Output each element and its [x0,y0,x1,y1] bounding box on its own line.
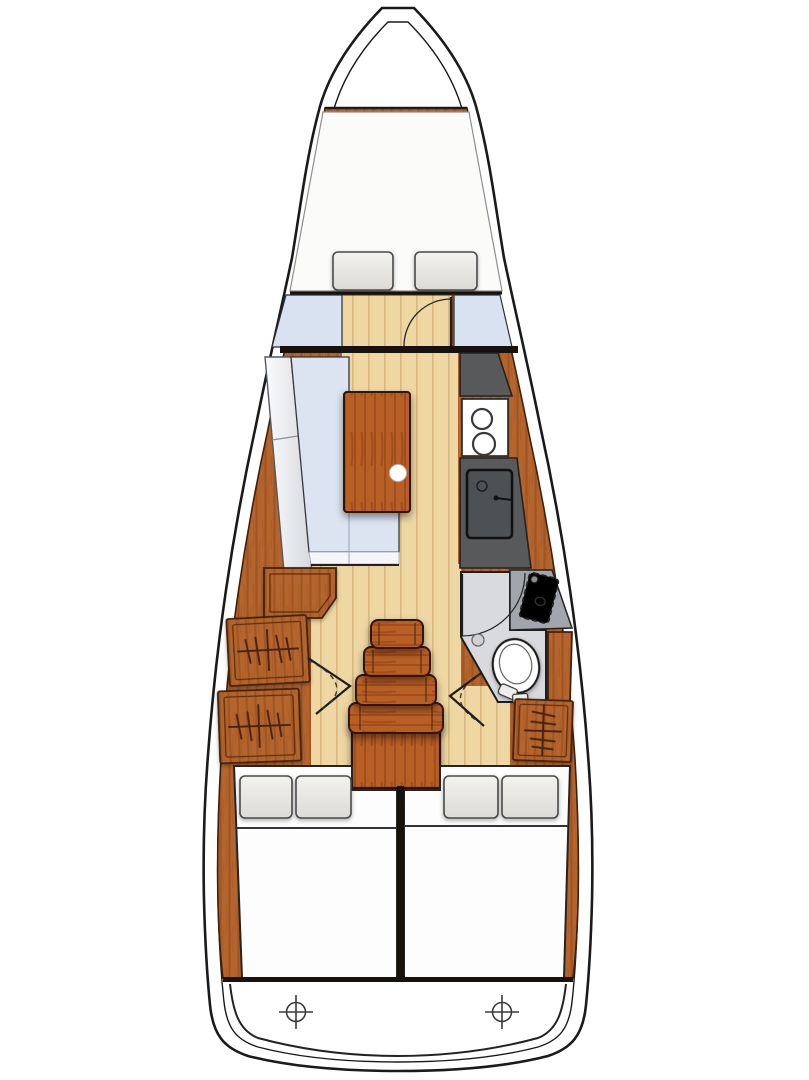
galley-sink [467,470,512,538]
settee-front-edge [309,552,399,564]
port-seat-module [264,568,336,618]
head-side-cabinet [548,632,572,702]
v-berth-pillow-starboard [415,252,477,290]
head-floor-drain [472,634,484,646]
forward-cabin [272,295,512,347]
aft-pillow-starboard-2 [502,776,558,818]
aft-berths [234,766,570,980]
berth-center-divider [397,786,404,980]
forward-cabin-floor [342,295,452,347]
saloon-table [344,392,410,512]
main-bulkhead [280,346,518,353]
transom-bulkhead [223,977,573,982]
hanging-locker-port-1 [226,615,309,686]
v-berth [290,112,502,293]
hanging-locker-port-2 [218,689,301,764]
hanging-locker-starboard [513,699,573,762]
table-handle-hole [390,465,407,482]
boat-floor-plan [0,0,809,1080]
floor-plan-stage [0,0,809,1080]
aft-pillow-port-1 [240,776,292,818]
aft-pillow-starboard-1 [444,776,498,818]
aft-pillow-port-2 [296,776,351,818]
v-berth-pillow-port [333,252,393,290]
